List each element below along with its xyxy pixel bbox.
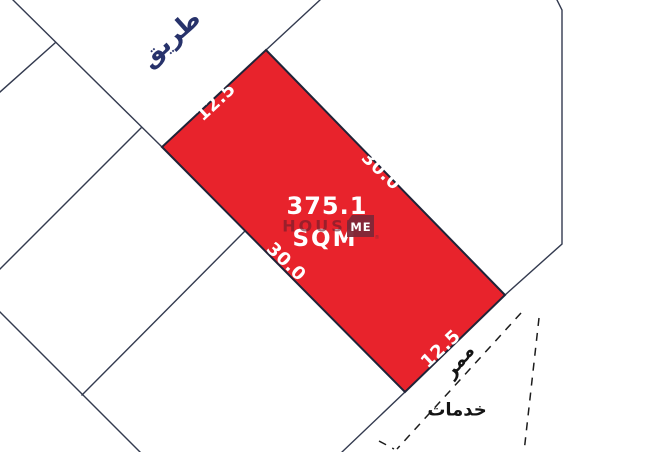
watermark-registered-mark: ® (375, 234, 380, 241)
parcel-divider-line-lower (82, 231, 245, 395)
plot-survey-canvas: طريق 12.5 30.0 30.0 12.5 375.1 SQM HOUSE… (0, 0, 668, 452)
plot-edge-extension-bottom (342, 392, 405, 452)
corridor-dashed-line-right (524, 318, 539, 452)
parcel-divider-line-bottom (0, 312, 140, 452)
corridor-dashed-corner (379, 441, 394, 449)
parcel-divider-line-top (0, 43, 55, 92)
plot-survey-diagram: طريق 12.5 30.0 30.0 12.5 375.1 SQM HOUSE… (0, 0, 668, 452)
parcel-divider-line-mid (0, 128, 141, 269)
services-label: خدمات (427, 400, 486, 421)
road-label: طريق (134, 3, 207, 73)
road-edge-extension-top (266, 0, 320, 50)
right-parcel-boundary (505, 0, 562, 295)
watermark-me-text: ME (350, 220, 371, 234)
road-southwest-edge-line (13, 0, 162, 147)
